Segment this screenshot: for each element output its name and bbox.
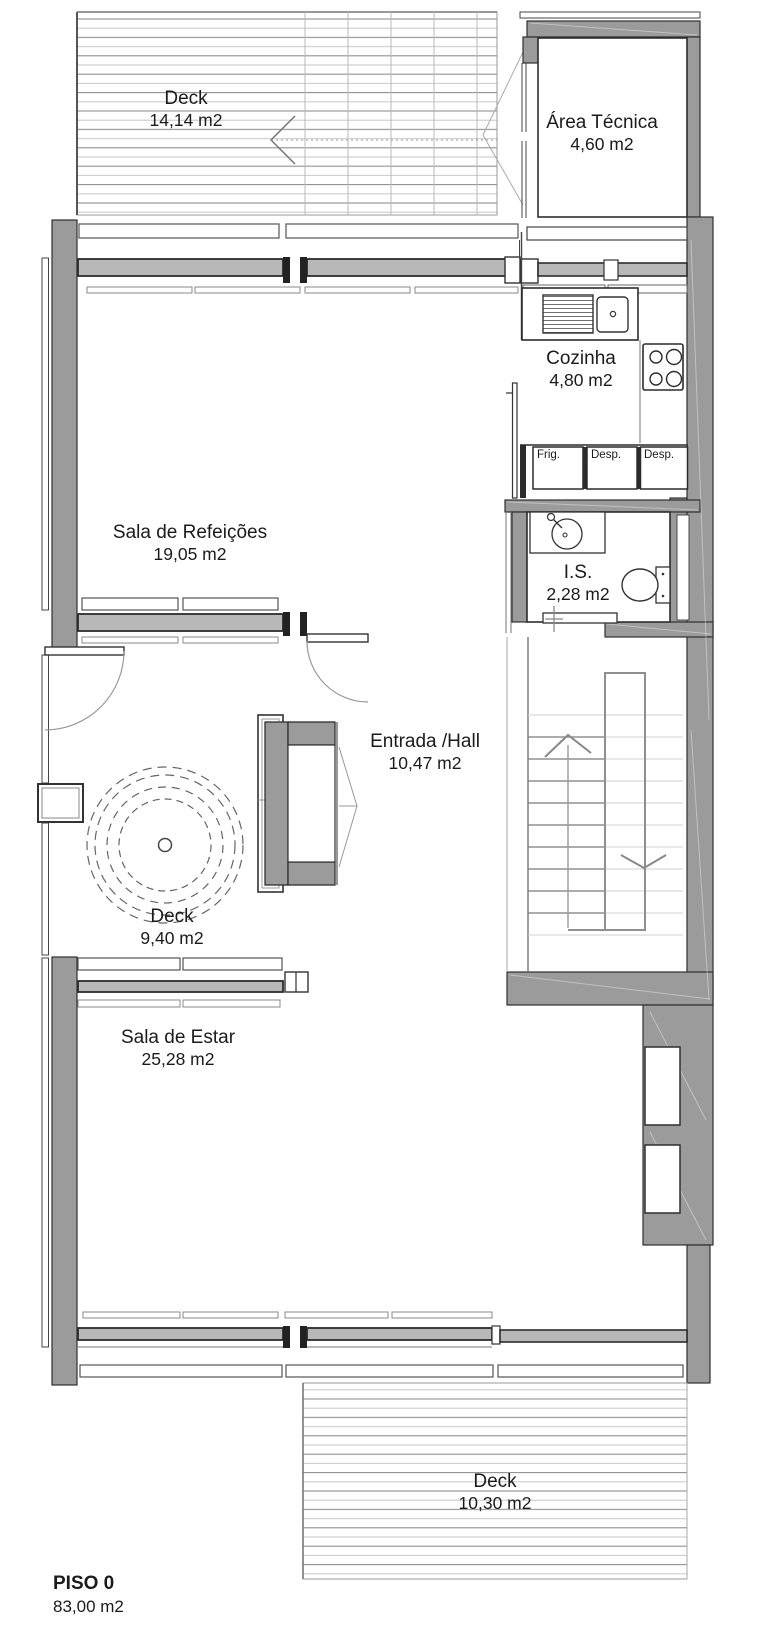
sink-icon bbox=[543, 295, 628, 333]
toilet-icon bbox=[622, 567, 670, 603]
cabinet-label-desp2: Desp. bbox=[644, 449, 674, 461]
top-deck bbox=[77, 12, 497, 215]
left-door bbox=[45, 647, 124, 730]
stove-icon bbox=[643, 344, 683, 390]
washbasin-icon bbox=[530, 512, 605, 553]
floor-plan-piso-0: Deck 14,14 m2 Área Técnica 4,60 m2 Cozin… bbox=[0, 0, 784, 1638]
room-label-sala-estar: Sala de Estar 25,28 m2 bbox=[121, 1027, 235, 1070]
deck-side-box bbox=[38, 784, 83, 822]
room-label-deck-middle: Deck 9,40 m2 bbox=[140, 906, 203, 949]
room-label-sala-refeicoes: Sala de Refeições 19,05 m2 bbox=[113, 522, 267, 565]
entry-door bbox=[307, 634, 368, 702]
tree-icon bbox=[87, 767, 243, 923]
floor-title-area: 83,00 m2 bbox=[53, 1596, 124, 1617]
stairs-down-arrow-icon bbox=[621, 855, 666, 868]
room-label-is: I.S. 2,28 m2 bbox=[546, 562, 609, 605]
room-label-entrada-hall: Entrada /Hall 10,47 m2 bbox=[370, 731, 480, 774]
window-band-top bbox=[78, 224, 520, 293]
floor-title: PISO 0 83,00 m2 bbox=[53, 1572, 124, 1617]
wall-post bbox=[506, 383, 517, 498]
window-band-bottom bbox=[78, 1312, 687, 1377]
window-band-deck-bottom bbox=[78, 958, 308, 1007]
cabinet-label-desp1: Desp. bbox=[591, 449, 621, 461]
cabinet-label-frig: Frig. bbox=[537, 449, 560, 461]
duct-slot bbox=[677, 515, 689, 620]
room-label-deck-bottom: Deck 10,30 m2 bbox=[459, 1471, 532, 1514]
window-band-middle bbox=[78, 598, 307, 643]
room-label-area-tecnica: Área Técnica 4,60 m2 bbox=[546, 112, 658, 155]
room-label-deck-top: Deck 14,14 m2 bbox=[150, 88, 223, 131]
room-label-cozinha: Cozinha 4,80 m2 bbox=[546, 348, 616, 391]
fireplace bbox=[258, 715, 357, 892]
floor-title-label: PISO 0 bbox=[53, 1572, 124, 1596]
floor-plan-drawing bbox=[0, 0, 784, 1638]
stairs bbox=[507, 637, 683, 972]
